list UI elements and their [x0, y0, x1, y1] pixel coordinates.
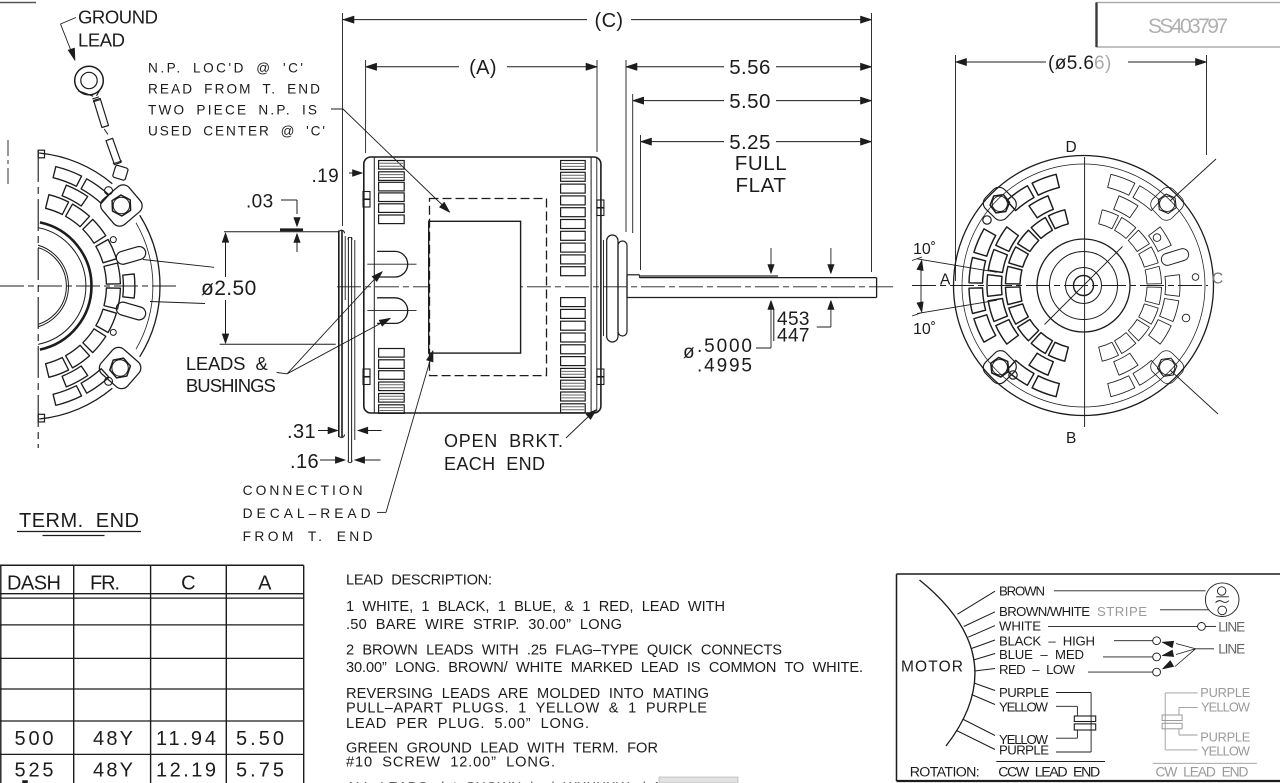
svg-text:PURPLE: PURPLE	[999, 743, 1049, 758]
svg-text:LEAD DESCRIPTION:: LEAD DESCRIPTION:	[346, 573, 492, 589]
svg-text:EACH END: EACH END	[444, 454, 545, 474]
svg-text:.16: .16	[290, 451, 319, 473]
svg-text:DASH: DASH	[7, 573, 61, 595]
svg-text:12.19: 12.19	[156, 760, 216, 782]
svg-text:(C): (C)	[595, 10, 624, 32]
svg-text:LEAD: LEAD	[78, 30, 125, 51]
svg-text:.4995: .4995	[697, 356, 752, 377]
svg-text:1 WHITE, 1 BLACK, 1 BLUE, & 1: 1 WHITE, 1 BLACK, 1 BLUE, & 1 RED, LEAD …	[346, 599, 725, 615]
svg-text:48Y: 48Y	[93, 760, 133, 782]
svg-text:FLAT: FLAT	[736, 174, 787, 197]
svg-text:.5000: .5000	[697, 336, 752, 357]
svg-text:PULL–APART PLUGS. 1 YELLOW & 1: PULL–APART PLUGS. 1 YELLOW & 1 PURPLE	[346, 700, 707, 716]
svg-text:A: A	[258, 573, 272, 595]
svg-text:.50 BARE WIRE STRIP. 30.00” LO: .50 BARE WIRE STRIP. 30.00” LONG	[346, 617, 622, 633]
svg-text:5.75: 5.75	[236, 760, 284, 782]
svg-text:D: D	[1066, 139, 1078, 156]
svg-text:BROWN: BROWN	[999, 583, 1045, 598]
svg-text:5.50: 5.50	[236, 728, 284, 750]
svg-text:.19: .19	[312, 166, 340, 187]
svg-text:GROUND: GROUND	[78, 7, 158, 28]
svg-text:READ FROM T. END: READ FROM T. END	[148, 82, 320, 97]
svg-text:ø: ø	[683, 342, 695, 363]
svg-text:RED – LOW: RED – LOW	[999, 662, 1076, 677]
svg-text:BUSHINGS: BUSHINGS	[186, 375, 276, 396]
svg-text:5.25: 5.25	[729, 131, 771, 154]
svg-text:48Y: 48Y	[93, 728, 133, 750]
svg-text:OPEN BRKT.: OPEN BRKT.	[444, 431, 563, 451]
svg-text:.03: .03	[246, 192, 274, 213]
svg-text:FROM T. END: FROM T. END	[243, 529, 373, 544]
svg-text:PURPLE: PURPLE	[999, 685, 1049, 700]
svg-text:FR.: FR.	[90, 573, 120, 595]
svg-text:TERM. END: TERM. END	[19, 510, 139, 532]
svg-text:(A): (A)	[469, 57, 497, 79]
svg-text:525: 525	[15, 760, 54, 782]
svg-text:CCW LEAD END: CCW LEAD END	[998, 764, 1100, 780]
svg-text:YELLOW: YELLOW	[1201, 744, 1251, 759]
svg-text:WHITE: WHITE	[999, 619, 1041, 634]
svg-text:C: C	[181, 573, 196, 595]
svg-text:LEADS &: LEADS &	[186, 353, 269, 374]
svg-text:10˚: 10˚	[913, 241, 936, 258]
svg-text:11.94: 11.94	[156, 728, 216, 750]
svg-text:CW LEAD END: CW LEAD END	[1156, 764, 1249, 779]
svg-text:LINE: LINE	[1218, 642, 1245, 657]
svg-text:A: A	[940, 272, 951, 289]
svg-text:(ø5.6: (ø5.6	[1048, 53, 1094, 74]
svg-text:CONNECTION: CONNECTION	[243, 483, 363, 498]
svg-text:ø2.50: ø2.50	[201, 277, 257, 300]
svg-text:TWO PIECE N.P. IS: TWO PIECE N.P. IS	[148, 103, 317, 118]
svg-text:C: C	[1212, 271, 1224, 288]
svg-text:YELLOW: YELLOW	[1201, 700, 1251, 715]
svg-text:ROTATION:: ROTATION:	[910, 764, 980, 780]
svg-text:2 BROWN LEADS WITH .25 FLAG–TY: 2 BROWN LEADS WITH .25 FLAG–TYPE QUICK C…	[346, 642, 782, 658]
svg-text:MOTOR: MOTOR	[901, 659, 963, 676]
svg-text:30.00” LONG. BROWN/ WHITE MARK: 30.00” LONG. BROWN/ WHITE MARKED LEAD IS…	[346, 660, 863, 676]
svg-text:5.56: 5.56	[729, 56, 771, 79]
svg-text:N.P. LOC'D @ 'C': N.P. LOC'D @ 'C'	[148, 61, 303, 76]
svg-text:YELLOW: YELLOW	[999, 700, 1049, 715]
svg-text:447: 447	[777, 326, 810, 347]
svg-text:STRIPE: STRIPE	[1097, 604, 1147, 619]
svg-text:FULL: FULL	[735, 152, 788, 175]
svg-text:BLUE – MED: BLUE – MED	[999, 647, 1084, 662]
svg-text:500: 500	[15, 728, 54, 750]
svg-text:PURPLE: PURPLE	[1200, 685, 1250, 700]
svg-text:LEAD PER PLUG. 5.00” LONG.: LEAD PER PLUG. 5.00” LONG.	[346, 716, 589, 732]
svg-text:.31: .31	[287, 421, 316, 443]
svg-text:10˚: 10˚	[913, 321, 936, 338]
svg-text:LINE: LINE	[1218, 619, 1245, 634]
svg-text:5.50: 5.50	[729, 90, 771, 113]
svg-text:PURPLE: PURPLE	[1200, 730, 1250, 745]
svg-text:BROWN/WHITE: BROWN/WHITE	[999, 604, 1090, 619]
svg-text:B: B	[1066, 430, 1077, 447]
svg-text:SS403797: SS403797	[1148, 15, 1228, 38]
svg-text:#10 SCREW 12.00” LONG.: #10 SCREW 12.00” LONG.	[346, 755, 555, 771]
svg-text:6): 6)	[1094, 53, 1112, 74]
